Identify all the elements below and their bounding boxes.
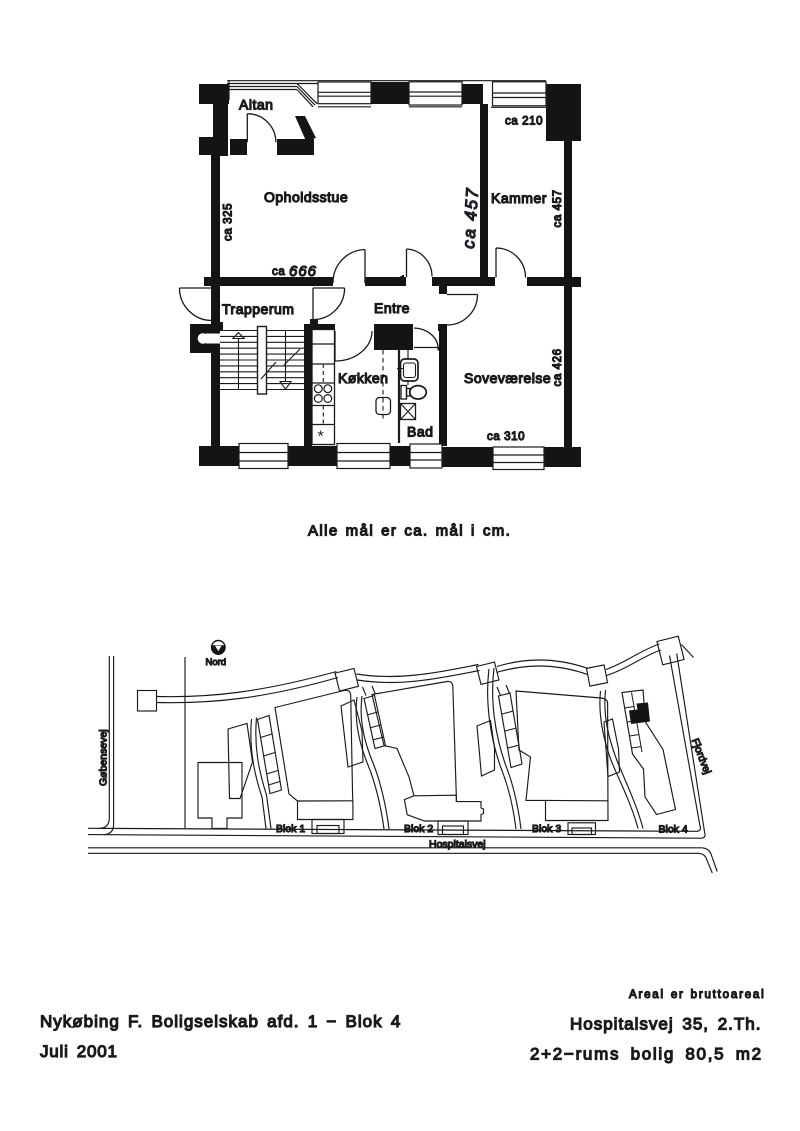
- svg-text:Blok 3: Blok 3: [532, 823, 561, 835]
- svg-text:Hospitalsvej 35, 2.Th.: Hospitalsvej 35, 2.Th.: [570, 1015, 761, 1034]
- svg-text:ca 457: ca 457: [459, 186, 482, 249]
- svg-text:2+2−rums bolig 80,5 m2: 2+2−rums bolig 80,5 m2: [530, 1045, 763, 1064]
- svg-text:ca: ca: [272, 266, 285, 278]
- svg-text:Soveværelse: Soveværelse: [464, 370, 551, 386]
- svg-text:Køkken: Køkken: [338, 370, 388, 386]
- svg-text:Blok 4: Blok 4: [659, 824, 688, 836]
- svg-text:Trapperum: Trapperum: [222, 301, 294, 317]
- svg-text:Alle mål er ca. mål i cm.: Alle mål er ca. mål i cm.: [308, 523, 511, 540]
- svg-text:ca 325: ca 325: [223, 203, 235, 241]
- svg-text:Blok 2: Blok 2: [404, 823, 433, 835]
- svg-text:Entre: Entre: [374, 300, 410, 316]
- svg-text:Nykøbing F. Boligselskab afd.: Nykøbing F. Boligselskab afd. 1 − Blok 4: [40, 1012, 401, 1031]
- svg-text:Hospitalsvej: Hospitalsvej: [429, 839, 486, 851]
- svg-text:ca 426: ca 426: [552, 348, 564, 386]
- svg-text:Gøbensevej: Gøbensevej: [98, 729, 110, 786]
- svg-text:Areal er bruttoareal: Areal er bruttoareal: [629, 989, 765, 1001]
- svg-text:Altan: Altan: [239, 97, 273, 113]
- svg-text:666: 666: [289, 263, 317, 280]
- svg-text:ca 457: ca 457: [552, 189, 564, 227]
- svg-text:Nord: Nord: [206, 657, 227, 668]
- svg-text:ca 210: ca 210: [505, 116, 543, 128]
- svg-text:ca 310: ca 310: [487, 431, 525, 443]
- svg-text:*: *: [318, 429, 324, 446]
- svg-text:Opholdsstue: Opholdsstue: [264, 189, 348, 205]
- svg-text:Bad: Bad: [407, 424, 433, 440]
- svg-text:Juli 2001: Juli 2001: [40, 1042, 118, 1061]
- svg-text:Kammer: Kammer: [491, 190, 547, 206]
- svg-text:Blok 1: Blok 1: [276, 823, 305, 835]
